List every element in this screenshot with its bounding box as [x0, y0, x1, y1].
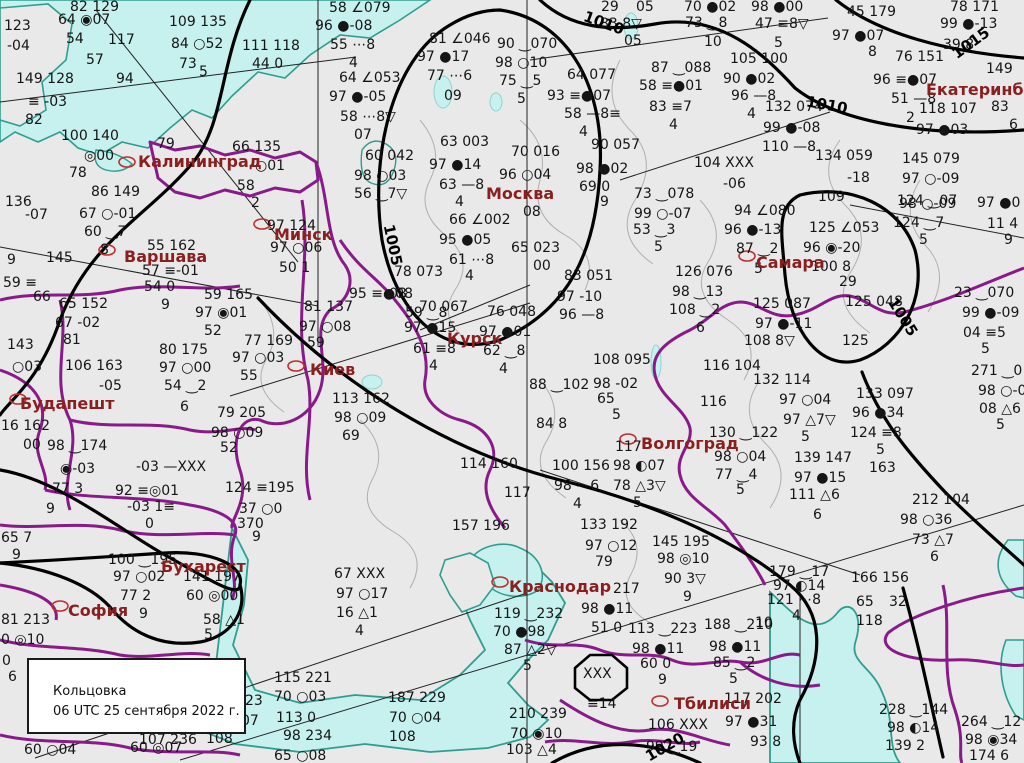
station-label: 113 162 — [332, 392, 390, 406]
station-label: 98 ●00 — [751, 0, 803, 14]
station-label: 98 ‿174 — [47, 439, 107, 453]
station-label: 16 162 — [1, 419, 50, 433]
station-label: 53 ‿3 — [633, 223, 675, 237]
station-label: 73 △7 — [912, 533, 954, 547]
station-label: ◎00 — [84, 149, 114, 163]
city-label: Москва — [486, 184, 554, 203]
station-label: 133 192 — [580, 518, 638, 532]
station-label: -07 — [25, 208, 48, 222]
station-label: 16 △1 — [336, 606, 378, 620]
station-label: 29 — [601, 0, 619, 14]
station-label: 76 151 — [895, 50, 944, 64]
station-label: 59 — [307, 336, 325, 350]
station-label: 73 — [179, 57, 197, 71]
station-label: 70 067 — [419, 300, 468, 314]
station-label: 64 077 — [567, 68, 616, 82]
station-label: 187 229 — [388, 691, 446, 705]
station-label: 121 ⋯8 — [767, 593, 821, 607]
station-label: 9 — [161, 298, 170, 312]
station-label: 69 0 — [579, 180, 610, 194]
station-label: 4 — [573, 497, 582, 511]
station-label: 97 -10 — [557, 290, 602, 304]
station-label: 93 8 — [750, 735, 781, 749]
station-label: 44 0 — [252, 57, 283, 71]
station-label: 05 — [636, 0, 654, 14]
station-label: 81 — [63, 333, 81, 347]
station-label: 97 ◐14 — [773, 579, 825, 593]
station-label: 66 — [33, 290, 51, 304]
station-label: 117 — [504, 486, 531, 500]
station-label: 37 ○0 — [239, 502, 282, 516]
station-label: -04 — [7, 39, 30, 53]
station-label: 95 ≡●08 — [349, 287, 413, 301]
station-label: 100 140 — [61, 129, 119, 143]
station-label: 4 — [669, 118, 678, 132]
station-label: 125 ∠053 — [809, 221, 879, 235]
station-label: 4 — [747, 107, 756, 121]
station-label: 5 — [204, 628, 213, 642]
station-label: 100 156 — [552, 459, 610, 473]
station-label: 4 — [499, 362, 508, 376]
station-label: 54 0 — [144, 280, 175, 294]
station-label: 70 ○03 — [274, 690, 326, 704]
station-label: 9 — [600, 195, 609, 209]
station-label: 69 — [342, 429, 360, 443]
station-label: 108 8▽ — [744, 334, 795, 348]
station-label: 117 — [615, 440, 642, 454]
station-label: 5 — [523, 659, 532, 673]
station-label: 56 ‿7▽ — [354, 187, 407, 201]
station-label: 97 ●15 — [794, 471, 846, 485]
station-label: 98 ○36 — [900, 513, 952, 527]
station-label: 96 ●-08 — [315, 19, 372, 33]
station-label: 124 ≡195 — [225, 481, 295, 495]
station-label: 58 —8≡ — [564, 107, 621, 121]
isobar-value-label: 1005 — [884, 295, 921, 340]
station-label: 157 196 — [452, 519, 510, 533]
station-label: 81 213 — [1, 613, 50, 627]
station-label: 70 ●98 — [493, 625, 545, 639]
station-label: 5 — [876, 443, 885, 457]
station-label: 70 016 — [511, 145, 560, 159]
station-label: 9 — [46, 502, 55, 516]
station-label: 117 — [108, 33, 135, 47]
station-label: 111 118 — [242, 39, 300, 53]
station-label: 60 0 — [640, 657, 671, 671]
station-label: 107 236 — [139, 733, 197, 747]
station-label: 77 3 — [52, 482, 83, 496]
station-label: 97 ○17 — [336, 587, 388, 601]
station-label: 145 — [46, 251, 73, 265]
station-label: 217 — [613, 582, 640, 596]
station-label: 32 — [889, 595, 907, 609]
station-label: 98 ○03 — [354, 169, 406, 183]
station-label: 97 ●0 — [977, 196, 1020, 210]
station-label: 0 — [2, 654, 11, 668]
station-label: 96 ○04 — [499, 168, 551, 182]
station-label: 2 — [906, 111, 915, 125]
station-label: ○03 — [12, 360, 42, 374]
station-label: 98 ●11 — [581, 602, 633, 616]
station-label: 97 ○00 — [159, 361, 211, 375]
station-label: 98 ○09 — [334, 411, 386, 425]
station-label: 108 ‿2 — [669, 303, 720, 317]
station-label: 83 — [991, 100, 1009, 114]
station-label: 97 ○04 — [779, 393, 831, 407]
station-label: 98 ●11 — [632, 642, 684, 656]
station-label: 10 — [704, 35, 722, 49]
station-label: 116 104 — [703, 359, 761, 373]
station-label: 64 ◉07 — [58, 13, 110, 27]
station-label: 5 — [996, 418, 1005, 432]
station-label: 87 ‿088 — [651, 61, 711, 75]
station-label: 6 — [696, 321, 705, 335]
station-label: 97 ●17 — [417, 50, 469, 64]
station-label: 96 ●-13 — [724, 223, 781, 237]
station-label: 00 — [23, 438, 41, 452]
station-label: 108 — [389, 730, 416, 744]
station-label: 60 ‿7 — [84, 225, 126, 239]
station-label: 97 ●-11 — [755, 317, 812, 331]
city-label: Будапешт — [20, 394, 115, 413]
station-label: 9 — [139, 607, 148, 621]
station-label: 58 ≡●01 — [639, 79, 703, 93]
station-label: 6 — [813, 508, 822, 522]
station-label: 106 163 — [65, 359, 123, 373]
station-label: 65 — [597, 392, 615, 406]
station-label: 79 — [595, 555, 613, 569]
station-label: 5 — [612, 408, 621, 422]
station-label: 54 — [66, 32, 84, 46]
station-label: 9 — [12, 548, 21, 562]
station-label: 0 ◎10 — [1, 633, 44, 647]
station-label: 76 048 — [487, 305, 536, 319]
station-label: 86 149 — [91, 185, 140, 199]
station-label: 83 051 — [564, 269, 613, 283]
station-label: 77 ⋯6 — [427, 69, 472, 83]
station-label: 5 — [729, 672, 738, 686]
station-label: 4 — [455, 195, 464, 209]
station-label: 65 7 — [1, 531, 32, 545]
station-label: 96 —8 — [559, 308, 604, 322]
station-label: 98 —6 — [554, 479, 599, 493]
station-label: 125 087 — [753, 297, 811, 311]
station-label: 98 ‿13 — [672, 285, 723, 299]
station-label: 108 095 — [593, 353, 651, 367]
station-label: 77 ‿4 — [715, 468, 757, 482]
station-label: 97 ●31 — [725, 715, 777, 729]
station-label: 118 107 — [919, 102, 977, 116]
station-label: 59 165 — [204, 288, 253, 302]
station-label: 149 — [986, 62, 1013, 76]
station-label: 52 — [204, 324, 222, 338]
station-label: 5 — [654, 240, 663, 254]
city-label: Варшава — [124, 247, 207, 266]
station-label: ◉-03 — [60, 462, 95, 476]
station-label: 99 ○-07 — [634, 207, 691, 221]
city-label: Минск — [274, 225, 333, 244]
station-label: 95 ●05 — [439, 233, 491, 247]
station-label: -03 1≡ — [127, 500, 175, 514]
station-label: 9 — [1004, 233, 1013, 247]
station-label: 55 ⋯8 — [330, 38, 375, 52]
isobar-value-label: 1005 — [380, 223, 406, 268]
station-label: 58 ∠079 — [329, 1, 391, 15]
station-label: 05 — [624, 34, 642, 48]
station-label: 50 1 — [279, 261, 310, 275]
station-label: 111 △6 — [789, 488, 840, 502]
station-label: 228 ‿144 — [879, 703, 948, 717]
station-label: 90 ●02 — [723, 72, 775, 86]
station-label: 98 ◐14 — [887, 721, 939, 735]
station-label: 45 179 — [847, 5, 896, 19]
station-label: -06 — [723, 177, 746, 191]
station-label: 78 171 — [950, 0, 999, 14]
station-label: 54 ‿2 — [164, 379, 206, 393]
station-label: 5 — [919, 233, 928, 247]
station-label: 149 128 — [16, 72, 74, 86]
station-label: 23 — [245, 694, 263, 708]
station-label: 08 △6 — [979, 402, 1021, 416]
station-label: 124 ≡8 — [850, 426, 902, 440]
station-label: 98 ◎10 — [657, 552, 709, 566]
station-label: 73 ‿078 — [634, 187, 694, 201]
station-label: 82 — [25, 113, 43, 127]
station-label: 81 137 — [304, 300, 353, 314]
station-label: 4 — [349, 56, 358, 70]
station-label: 57 — [86, 53, 104, 67]
station-label: 97 ○02 — [113, 570, 165, 584]
station-label: -18 — [847, 171, 870, 185]
station-label: 116 — [700, 395, 727, 409]
station-label: 04 ≡5 — [963, 326, 1006, 340]
station-label: 97 ○-09 — [902, 172, 959, 186]
station-label: 118 — [856, 614, 883, 628]
station-label: 55 — [240, 369, 258, 383]
station-label: 73 ‿8 — [685, 16, 727, 30]
station-label: 98 ●02 — [576, 162, 628, 176]
station-label: 126 076 — [675, 265, 733, 279]
station-label: 63 —8 — [439, 178, 484, 192]
station-label: 98 234 — [283, 729, 332, 743]
station-label: 5 — [801, 430, 810, 444]
station-label: 51 0 — [591, 621, 622, 635]
station-label: 70 ○04 — [389, 711, 441, 725]
station-label: 92 ≡◎01 — [115, 484, 179, 498]
station-label: 103 △4 — [506, 743, 557, 757]
station-label: -05 — [99, 379, 122, 393]
station-label: 98 ●11 — [709, 640, 761, 654]
station-label: 97 ○08 — [299, 320, 351, 334]
station-label: 23 ‿070 — [954, 286, 1014, 300]
station-label: XXX — [583, 667, 612, 681]
station-label: 87 △2▽ — [504, 643, 557, 657]
station-label: 97 ○03 — [232, 351, 284, 365]
station-label: 94 ∠080 — [734, 204, 796, 218]
station-label: 10 — [755, 616, 773, 630]
station-label: 5 — [981, 342, 990, 356]
station-label: 65 152 — [59, 297, 108, 311]
station-label: 08 — [523, 205, 541, 219]
station-label: 5 — [633, 496, 642, 510]
station-label: 70 ◉10 — [510, 727, 562, 741]
station-label: ≡ -03 — [28, 95, 67, 109]
station-label: 97 △7▽ — [783, 413, 836, 427]
station-label: 58 — [237, 179, 255, 193]
station-label: ≡14 — [587, 697, 617, 711]
station-label: 4 — [579, 125, 588, 139]
station-label: 78 △3▽ — [613, 479, 666, 493]
station-label: 179 ‿17 — [769, 565, 829, 579]
station-label: 97 ●14 — [429, 158, 481, 172]
station-label: 139 147 — [794, 451, 852, 465]
station-label: 210 239 — [509, 707, 567, 721]
station-label: 63 003 — [440, 135, 489, 149]
station-label: 58 ⋯8▽ — [340, 110, 396, 124]
station-label: 4 — [792, 609, 801, 623]
station-label: 09 — [444, 89, 462, 103]
station-label: 123 — [4, 19, 31, 33]
station-label: 6 — [930, 550, 939, 564]
station-label: 83 ≡7 — [649, 100, 692, 114]
city-label: Краснодар — [509, 577, 611, 596]
city-label: Волгоград — [641, 434, 739, 453]
city-label: Бухарест — [161, 557, 246, 576]
station-label: 65 — [856, 595, 874, 609]
station-label: 6 — [180, 400, 189, 414]
station-label: 109 135 — [169, 15, 227, 29]
station-label: 8 — [868, 45, 877, 59]
station-label: 60 ◎00 — [186, 589, 238, 603]
station-label: 166 156 — [851, 571, 909, 585]
station-label: 145 079 — [902, 152, 960, 166]
station-label: 90 3▽ — [664, 572, 706, 586]
station-label: 98 ○-09 — [899, 197, 956, 211]
station-label: 5 — [774, 36, 783, 50]
station-label: 84 8 — [536, 417, 567, 431]
station-label: 5 — [517, 92, 526, 106]
map-datetime: 06 UTC 25 сентября 2022 г. — [53, 702, 244, 722]
station-label: 97 ◉01 — [195, 306, 247, 320]
city-label: Екатеринбург — [926, 80, 1024, 99]
station-label: 61 ⋯8 — [449, 253, 494, 267]
station-label: 80 175 — [159, 343, 208, 357]
station-label: 99 ●-13 — [940, 17, 997, 31]
station-label: 212 104 — [912, 493, 970, 507]
station-label: 07 — [354, 128, 372, 142]
station-label: 124 ‿7 — [893, 216, 944, 230]
station-label: 99 ●-08 — [763, 121, 820, 135]
station-label: 64 ∠053 — [339, 71, 401, 85]
city-label: Курск — [447, 329, 502, 348]
station-label: 2 — [251, 196, 260, 210]
station-label: -03 —XXX — [136, 460, 206, 474]
station-label: 58 △1 — [203, 613, 245, 627]
station-label: 67 ○-01 — [79, 207, 136, 221]
station-label: 85 ‿2 — [713, 656, 755, 670]
station-label: 174 6 — [969, 749, 1009, 763]
station-label: 98 ◉34 — [965, 733, 1017, 747]
station-label: 47 ≡8▽ — [755, 17, 809, 31]
station-label: 98 ◐07 — [613, 459, 665, 473]
station-label: 113 0 — [276, 711, 316, 725]
station-label: 5 — [736, 483, 745, 497]
city-label: Самара — [756, 253, 825, 272]
station-label: 65 023 — [511, 241, 560, 255]
station-label: 143 — [7, 338, 34, 352]
station-label: 98 -02 — [593, 377, 638, 391]
station-label: 5 — [199, 65, 208, 79]
city-label: София — [68, 601, 128, 620]
station-label: 81 ∠046 — [429, 32, 491, 46]
station-label: 9 — [683, 590, 692, 604]
station-label: 6 — [8, 670, 17, 684]
station-label: 4 — [465, 269, 474, 283]
map-info-box: Кольцовка 06 UTC 25 сентября 2022 г. — [27, 658, 246, 734]
station-label: 59 ≡ — [3, 276, 37, 290]
station-label: 88 ‿102 — [529, 378, 589, 392]
station-label: 108 — [206, 732, 233, 746]
station-label: 264 ‿12 — [961, 715, 1021, 729]
station-label: 29 — [839, 275, 857, 289]
station-label: 109 — [818, 190, 845, 204]
station-label: 65 ○08 — [274, 749, 326, 763]
station-label: 67 -02 — [55, 316, 100, 330]
station-label: 11 4 — [987, 217, 1018, 231]
station-label: 119 ‿232 — [494, 607, 563, 621]
labels-layer: 82 12964 ◉07123-0454109 13584 ○527351175… — [0, 0, 1024, 763]
station-label: 99 ●-09 — [962, 306, 1019, 320]
station-label: 125 — [842, 334, 869, 348]
station-label: 9 — [658, 673, 667, 687]
station-label: 145 195 — [652, 535, 710, 549]
station-label: 75 ‿5 — [499, 74, 541, 88]
station-label: 78 — [69, 166, 87, 180]
station-label: 97 ●07 — [832, 29, 884, 43]
station-label: 110 —8 — [762, 140, 816, 154]
station-label: 114 160 — [460, 457, 518, 471]
station-label: 271 ‿0 — [971, 364, 1022, 378]
station-label: 90 ‿070 — [497, 37, 557, 51]
station-label: 98 ○09 — [211, 426, 263, 440]
station-label: 96 ●34 — [852, 406, 904, 420]
station-label: 113 ‿223 — [628, 622, 697, 636]
station-label: 97 ○12 — [585, 539, 637, 553]
station-label: 93 ≡●07 — [547, 89, 611, 103]
station-label: 84 ○52 — [171, 37, 223, 51]
station-label: 9 — [252, 530, 261, 544]
station-label: 79 — [157, 137, 175, 151]
isobar-value-label: 1020 — [642, 729, 687, 763]
station-label: 4 — [429, 359, 438, 373]
station-label: 163 — [869, 461, 896, 475]
station-label: 78 073 — [394, 265, 443, 279]
station-label: 133 097 — [856, 387, 914, 401]
station-label: 70 ●02 — [684, 0, 736, 14]
station-label: 00 — [533, 259, 551, 273]
station-label: 94 — [116, 72, 134, 86]
station-label: 139 2 — [885, 739, 925, 753]
station-label: 0 — [145, 517, 154, 531]
synoptic-weather-map: 82 12964 ◉07123-0454109 13584 ○527351175… — [0, 0, 1024, 763]
station-label: 8 — [100, 243, 109, 257]
station-label: 77 169 — [244, 334, 293, 348]
station-label: 60 042 — [365, 149, 414, 163]
map-title: Кольцовка — [53, 682, 244, 702]
station-label: 6 — [1009, 118, 1018, 132]
station-label: 104 XXX — [694, 156, 754, 170]
station-label: 57 ≡-01 — [142, 264, 199, 278]
